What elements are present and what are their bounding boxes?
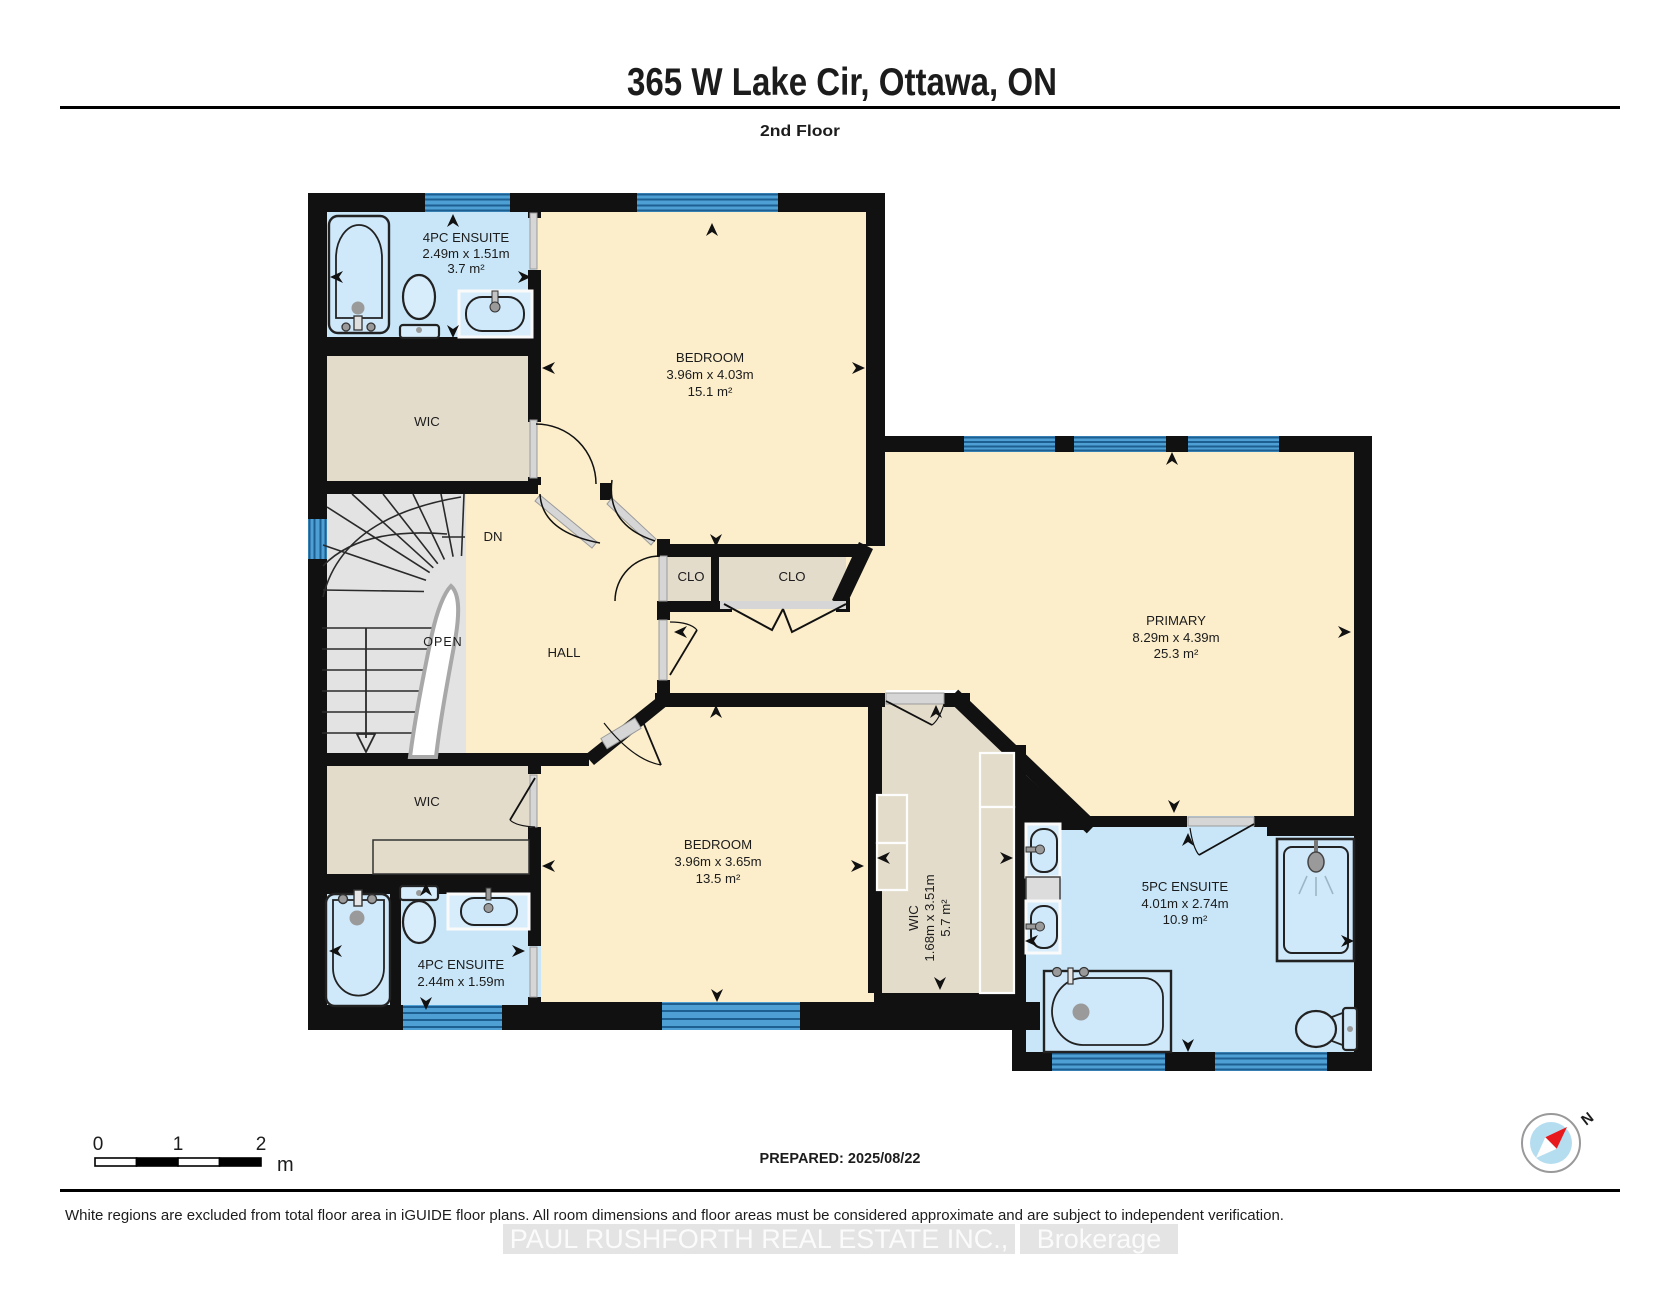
svg-text:2nd Floor: 2nd Floor xyxy=(760,123,840,140)
svg-text:13.5 m²: 13.5 m² xyxy=(696,871,741,886)
svg-text:2.49m x 1.51m: 2.49m x 1.51m xyxy=(422,246,509,261)
svg-text:PRIMARY: PRIMARY xyxy=(1146,613,1206,628)
svg-text:BEDROOM: BEDROOM xyxy=(676,350,744,365)
svg-text:0: 0 xyxy=(93,1134,104,1155)
svg-text:4PC ENSUITE: 4PC ENSUITE xyxy=(418,957,505,972)
svg-text:25.3 m²: 25.3 m² xyxy=(1154,646,1199,661)
svg-text:3.7 m²: 3.7 m² xyxy=(447,261,485,276)
svg-text:2: 2 xyxy=(256,1134,267,1155)
svg-text:1: 1 xyxy=(173,1134,184,1155)
svg-text:PREPARED: 2025/08/22: PREPARED: 2025/08/22 xyxy=(760,1151,921,1167)
svg-text:PAUL RUSHFORTH REAL ESTATE INC: PAUL RUSHFORTH REAL ESTATE INC., xyxy=(510,1224,1009,1254)
svg-text:WIC: WIC xyxy=(414,794,440,809)
svg-text:4PC ENSUITE: 4PC ENSUITE xyxy=(423,230,510,245)
svg-text:5.7 m²: 5.7 m² xyxy=(938,899,953,937)
svg-text:8.29m x 4.39m: 8.29m x 4.39m xyxy=(1132,630,1219,645)
svg-text:10.9 m²: 10.9 m² xyxy=(1163,912,1208,927)
svg-text:3.96m x 4.03m: 3.96m x 4.03m xyxy=(666,367,753,382)
svg-text:White regions are excluded fro: White regions are excluded from total fl… xyxy=(65,1207,1284,1224)
svg-text:5PC ENSUITE: 5PC ENSUITE xyxy=(1142,879,1229,894)
svg-text:2.44m x 1.59m: 2.44m x 1.59m xyxy=(417,974,504,989)
svg-text:WIC: WIC xyxy=(414,414,440,429)
svg-text:WIC: WIC xyxy=(906,905,921,931)
svg-text:3.96m x 3.65m: 3.96m x 3.65m xyxy=(674,854,761,869)
svg-text:15.1 m²: 15.1 m² xyxy=(688,384,733,399)
svg-text:1.68m x 3.51m: 1.68m x 3.51m xyxy=(922,874,937,961)
svg-text:HALL: HALL xyxy=(548,645,581,660)
svg-text:m: m xyxy=(277,1154,294,1176)
svg-text:Brokerage: Brokerage xyxy=(1037,1224,1162,1254)
svg-text:CLO: CLO xyxy=(677,569,704,584)
svg-text:OPEN: OPEN xyxy=(423,635,462,649)
svg-text:BEDROOM: BEDROOM xyxy=(684,837,752,852)
svg-text:CLO: CLO xyxy=(778,569,805,584)
svg-text:DN: DN xyxy=(483,529,502,544)
svg-text:365 W Lake Cir, Ottawa, ON: 365 W Lake Cir, Ottawa, ON xyxy=(627,61,1057,104)
svg-text:4.01m x 2.74m: 4.01m x 2.74m xyxy=(1141,896,1228,911)
